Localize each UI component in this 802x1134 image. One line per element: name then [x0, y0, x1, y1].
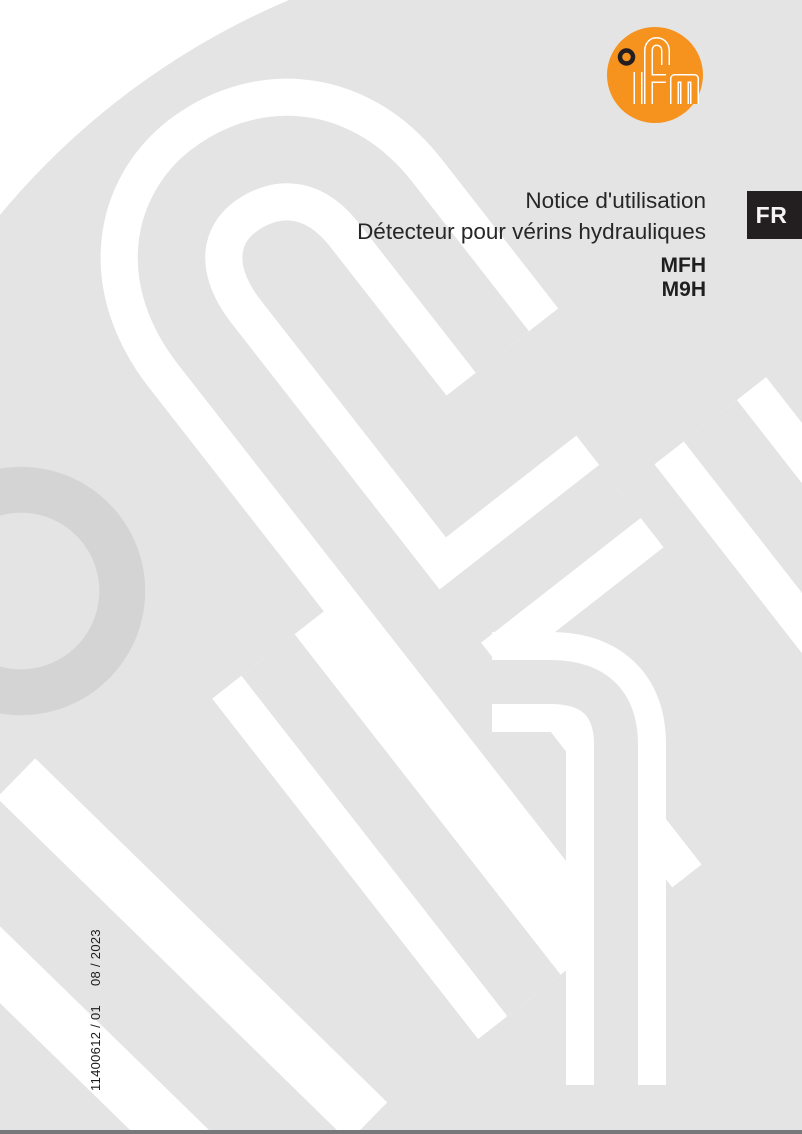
document-title: Notice d'utilisation: [357, 186, 706, 216]
footer-bar: [0, 1130, 802, 1134]
ifm-logo: [604, 25, 706, 125]
document-number: 11400612 / 01: [88, 1005, 103, 1091]
language-badge-label: FR: [756, 202, 788, 229]
ifm-watermark: [0, 0, 802, 1134]
document-subtitle: Détecteur pour vérins hydrauliques: [357, 216, 706, 247]
language-badge: FR: [747, 191, 802, 239]
document-id-line: 11400612 / 01 08 / 2023: [88, 929, 103, 1091]
document-date: 08 / 2023: [88, 929, 103, 986]
title-block: Notice d'utilisation Détecteur pour véri…: [357, 186, 706, 302]
model-name: MFH: [357, 254, 706, 278]
model-list: MFH M9H: [357, 254, 706, 302]
manual-cover-page: Notice d'utilisation Détecteur pour véri…: [0, 0, 802, 1134]
model-name: M9H: [357, 278, 706, 302]
